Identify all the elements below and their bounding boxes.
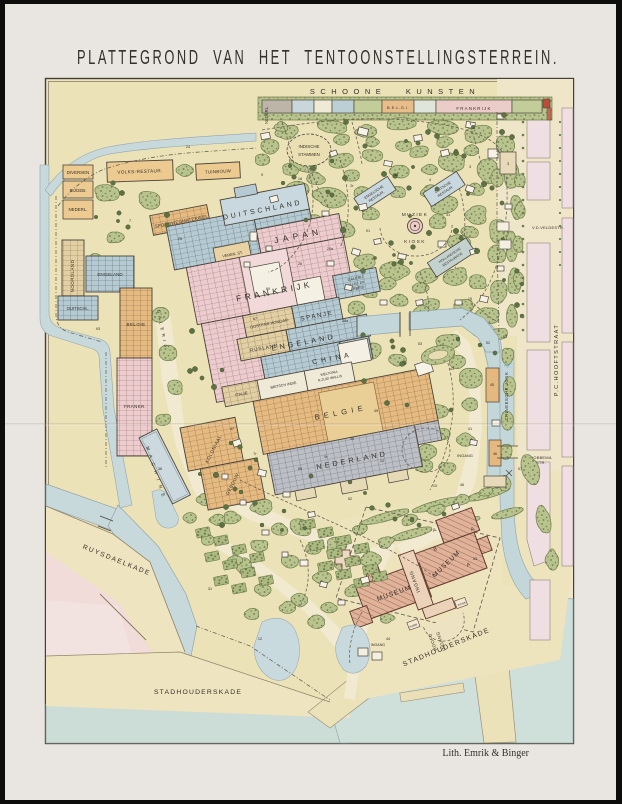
svg-text:NOORDLAND: NOORDLAND [70, 260, 75, 293]
svg-text:7: 7 [129, 219, 131, 223]
svg-text:91: 91 [366, 229, 370, 233]
svg-text:CHINEESCHE JONK: CHINEESCHE JONK [504, 372, 509, 421]
svg-text:NEDERL.: NEDERL. [68, 207, 87, 212]
svg-text:9: 9 [261, 173, 263, 177]
svg-text:55: 55 [298, 467, 302, 471]
svg-text:31: 31 [446, 213, 450, 217]
svg-text:57: 57 [518, 467, 522, 471]
svg-text:3: 3 [469, 165, 471, 169]
svg-text:53: 53 [418, 342, 422, 346]
svg-text:DIVERSEN: DIVERSEN [67, 170, 89, 175]
svg-text:46: 46 [460, 483, 464, 487]
svg-text:26: 26 [298, 262, 302, 266]
svg-text:25: 25 [178, 237, 182, 241]
svg-text:60: 60 [266, 287, 270, 291]
svg-text:KIOSK: KIOSK [404, 239, 426, 245]
svg-text:38: 38 [394, 173, 398, 177]
svg-text:Lith. Emrik & Binger: Lith. Emrik & Binger [442, 748, 529, 759]
svg-text:DUITSCHL.: DUITSCHL. [67, 306, 89, 311]
svg-text:12: 12 [380, 459, 384, 463]
svg-text:53: 53 [473, 557, 477, 561]
svg-text:24: 24 [186, 145, 190, 149]
svg-text:STAMMEN: STAMMEN [298, 152, 320, 157]
svg-text:28a: 28a [342, 319, 349, 323]
svg-text:⚓: ⚓ [503, 363, 509, 369]
svg-text:47: 47 [230, 427, 234, 431]
svg-text:INDISCHE: INDISCHE [299, 144, 320, 149]
svg-text:41: 41 [468, 427, 472, 431]
svg-text:INGANG: INGANG [457, 453, 473, 458]
svg-text:SCHOONE KUNSTEN: SCHOONE KUNSTEN [310, 87, 480, 96]
svg-text:44: 44 [386, 637, 390, 641]
svg-text:93: 93 [96, 327, 100, 331]
svg-text:67: 67 [253, 317, 257, 321]
svg-text:62: 62 [503, 335, 507, 339]
svg-text:NEDERL.: NEDERL. [264, 106, 269, 124]
svg-text:36: 36 [158, 467, 162, 471]
svg-text:FRANKRIJK: FRANKRIJK [456, 106, 491, 111]
svg-text:BELGIE: BELGIE [127, 322, 146, 327]
svg-text:39: 39 [350, 437, 354, 441]
svg-text:45: 45 [490, 383, 494, 387]
svg-text:52: 52 [348, 497, 352, 501]
svg-text:12: 12 [258, 637, 262, 641]
svg-text:INGANG: INGANG [371, 643, 385, 647]
svg-text:MUZIEK: MUZIEK [402, 212, 429, 218]
svg-text:B.E.L.G.I.: B.E.L.G.I. [387, 105, 409, 110]
svg-text:STADHOUDERSKADE: STADHOUDERSKADE [154, 689, 242, 696]
svg-text:PLATTEGROND VAN HET TENTOONSTE: PLATTEGROND VAN HET TENTOONSTELLINGSTERR… [77, 47, 559, 69]
svg-text:18: 18 [298, 177, 302, 181]
svg-text:52: 52 [486, 341, 490, 345]
svg-text:ENGELAND: ENGELAND [97, 272, 123, 277]
svg-text:4: 4 [429, 178, 431, 182]
svg-text:49: 49 [374, 409, 378, 413]
svg-text:10: 10 [433, 484, 437, 488]
svg-text:20a: 20a [327, 247, 334, 251]
svg-text:FRANKR.: FRANKR. [124, 404, 146, 409]
svg-text:31: 31 [208, 587, 212, 591]
svg-text:46: 46 [493, 452, 497, 456]
svg-text:P.C.HOOFTSTRAAT: P.C.HOOFTSTRAAT [554, 324, 560, 396]
svg-text:43: 43 [450, 367, 454, 371]
